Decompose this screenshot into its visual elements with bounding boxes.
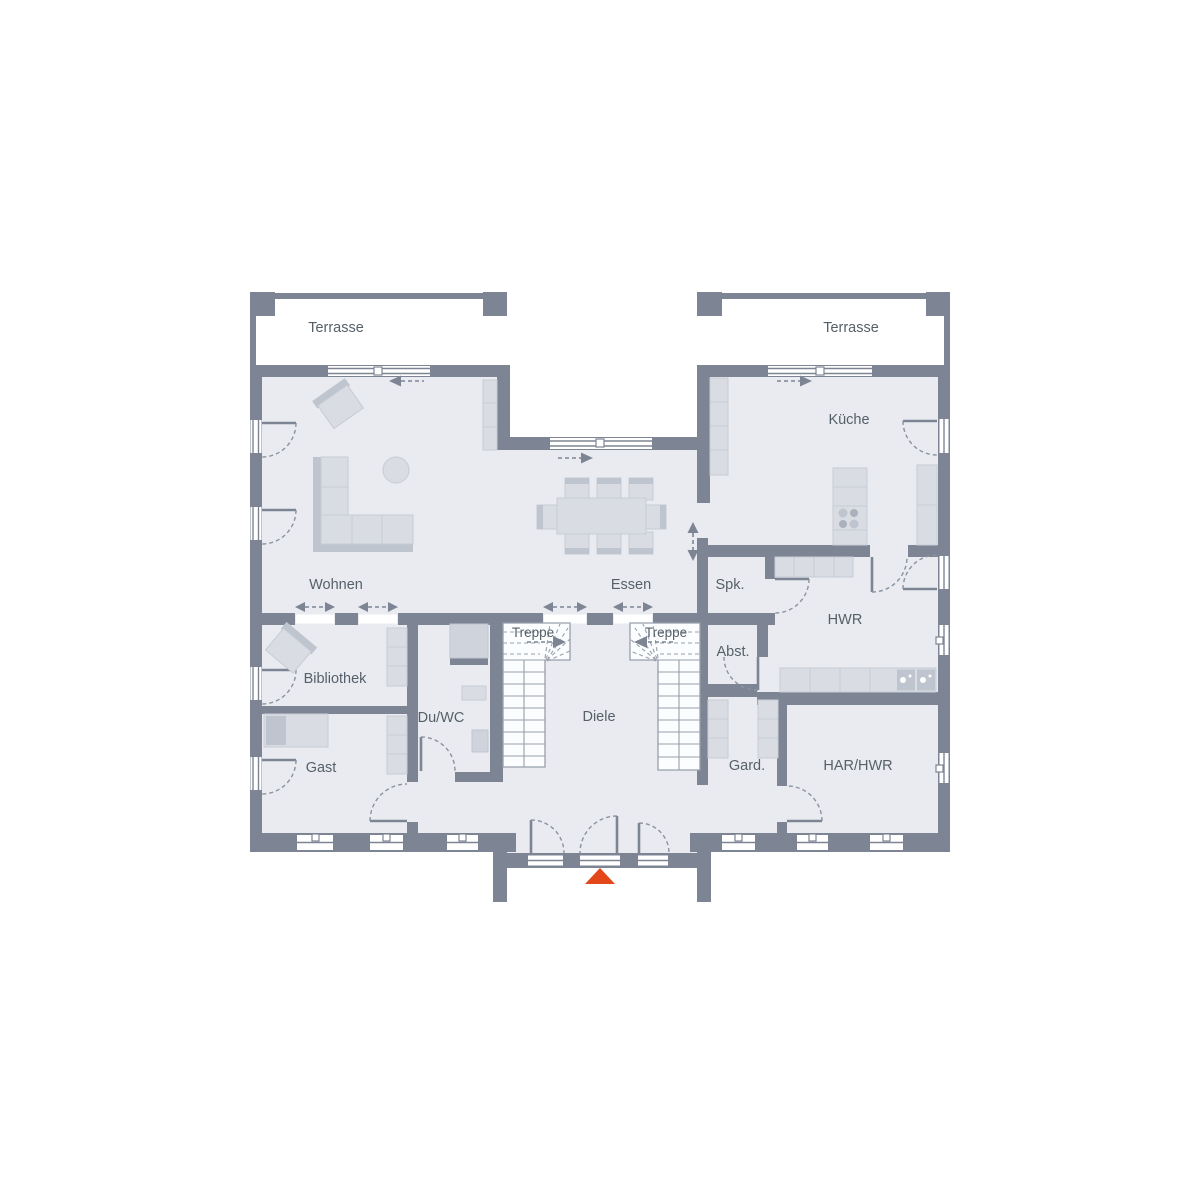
floor-plan: Terrasse Terrasse Wohnen Essen Küche Spk… bbox=[0, 0, 1200, 1200]
window-living-2 bbox=[251, 507, 262, 540]
window-south-3 bbox=[447, 834, 478, 850]
guest-shelf bbox=[387, 716, 407, 774]
floor-plan-page: Terrasse Terrasse Wohnen Essen Küche Spk… bbox=[0, 0, 1200, 1200]
library-shelf bbox=[387, 628, 407, 686]
label-stairs-left: Treppe bbox=[512, 625, 554, 640]
window-living-1 bbox=[251, 420, 262, 453]
label-living: Wohnen bbox=[309, 577, 363, 593]
label-tech-room: HAR/HWR bbox=[823, 758, 892, 774]
label-hallway: Diele bbox=[582, 709, 615, 725]
label-terrace-right: Terrasse bbox=[823, 320, 879, 336]
window-library bbox=[251, 667, 262, 700]
label-terrace-left: Terrasse bbox=[308, 320, 364, 336]
kitchen-island-with-cooktop bbox=[833, 468, 867, 545]
shower bbox=[450, 624, 488, 658]
sliding-door-terrace-right bbox=[768, 366, 872, 376]
label-dining: Essen bbox=[611, 577, 651, 593]
window-south-1 bbox=[297, 834, 333, 850]
window-south-5 bbox=[797, 834, 828, 850]
label-kitchen: Küche bbox=[828, 412, 869, 428]
window-south-4 bbox=[722, 834, 755, 850]
kitchen-shelves-west bbox=[710, 378, 728, 475]
utility-counter-top bbox=[775, 557, 853, 577]
sliding-door-terrace-left bbox=[328, 366, 430, 376]
label-utility: HWR bbox=[828, 612, 863, 628]
sliding-door-dining-recess bbox=[550, 438, 652, 449]
utility-counter-appliances bbox=[780, 668, 936, 692]
label-storage: Abst. bbox=[716, 644, 749, 660]
label-guest: Gast bbox=[306, 760, 337, 776]
terrace-left-outline bbox=[250, 292, 507, 365]
label-library: Bibliothek bbox=[304, 671, 368, 687]
washbasin bbox=[462, 686, 486, 700]
label-stairs-right: Treppe bbox=[645, 625, 687, 640]
kitchen-tall-units bbox=[917, 465, 937, 545]
label-pantry: Spk. bbox=[715, 577, 744, 593]
window-guest bbox=[251, 757, 262, 790]
window-south-2 bbox=[370, 834, 403, 850]
guest-bed bbox=[264, 714, 328, 747]
entrance-marker bbox=[585, 868, 615, 884]
window-south-6 bbox=[870, 834, 903, 850]
side-table bbox=[383, 457, 409, 483]
toilet bbox=[472, 730, 488, 752]
label-wardrobe: Gard. bbox=[729, 758, 765, 774]
living-cabinet bbox=[483, 380, 497, 450]
label-shower-wc: Du/WC bbox=[418, 710, 465, 726]
